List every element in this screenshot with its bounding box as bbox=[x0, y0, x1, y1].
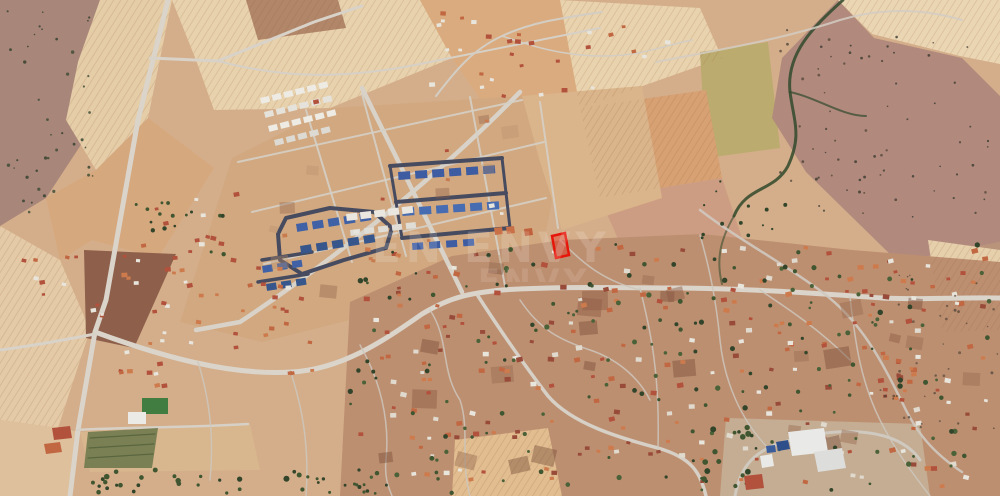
house bbox=[689, 404, 695, 409]
house bbox=[612, 288, 618, 293]
tree-marker bbox=[429, 456, 434, 461]
tree-marker bbox=[465, 285, 468, 288]
house bbox=[456, 421, 462, 426]
house bbox=[196, 320, 202, 325]
tree-marker bbox=[372, 328, 376, 332]
tree-marker bbox=[744, 425, 749, 430]
tree-marker bbox=[435, 471, 439, 475]
house bbox=[792, 258, 798, 263]
tree-marker bbox=[374, 377, 377, 380]
house bbox=[188, 250, 192, 253]
tree-marker bbox=[221, 252, 225, 256]
house bbox=[285, 285, 291, 289]
house bbox=[411, 472, 416, 476]
tree-marker bbox=[833, 411, 836, 414]
tree-marker bbox=[702, 459, 708, 465]
tree-marker bbox=[810, 301, 813, 304]
house bbox=[778, 331, 782, 334]
house bbox=[911, 427, 915, 430]
tree-marker bbox=[136, 483, 140, 487]
shrub-marker bbox=[87, 75, 89, 77]
tree-marker bbox=[783, 265, 788, 270]
tree-marker bbox=[712, 449, 717, 454]
shrub-marker bbox=[898, 370, 901, 373]
scene-root: ENENVYENVY bbox=[0, 0, 1000, 496]
tree-marker bbox=[544, 324, 549, 329]
tree-marker bbox=[104, 474, 110, 480]
tree-marker bbox=[740, 434, 746, 440]
shrub-marker bbox=[946, 305, 948, 307]
house bbox=[767, 407, 772, 411]
patch bbox=[306, 165, 319, 175]
house bbox=[234, 345, 239, 349]
house bbox=[915, 328, 921, 332]
patch bbox=[319, 284, 337, 298]
house bbox=[373, 318, 379, 322]
shrub-marker bbox=[886, 149, 888, 151]
house bbox=[480, 330, 485, 334]
tree-marker bbox=[845, 330, 850, 335]
tree-marker bbox=[765, 208, 769, 212]
tree-marker bbox=[838, 275, 842, 279]
tree-marker bbox=[700, 489, 703, 492]
house bbox=[562, 88, 568, 92]
tree-marker bbox=[375, 471, 379, 475]
tree-marker bbox=[856, 292, 860, 296]
tree-marker bbox=[105, 486, 109, 490]
shrub-marker bbox=[46, 118, 49, 121]
tree-marker bbox=[344, 484, 347, 487]
tree-marker bbox=[694, 322, 697, 325]
tree-marker bbox=[616, 300, 621, 305]
white-roof-block bbox=[360, 211, 372, 219]
house bbox=[548, 357, 555, 362]
house bbox=[530, 382, 536, 387]
campus-building bbox=[814, 448, 846, 472]
house bbox=[471, 20, 476, 24]
tree-marker bbox=[411, 411, 415, 415]
tree-marker bbox=[911, 278, 914, 281]
house bbox=[165, 267, 171, 272]
shrub-marker bbox=[933, 392, 935, 394]
house bbox=[826, 251, 832, 256]
white-roof-block bbox=[388, 208, 400, 216]
tree-marker bbox=[678, 299, 683, 304]
tree-marker bbox=[808, 307, 811, 310]
house bbox=[883, 388, 888, 392]
house bbox=[648, 452, 653, 456]
tree-marker bbox=[854, 437, 857, 440]
tree-marker bbox=[500, 411, 505, 416]
tree-marker bbox=[523, 432, 527, 436]
house bbox=[452, 266, 457, 270]
tree-marker bbox=[701, 233, 704, 236]
shrub-marker bbox=[884, 395, 887, 398]
shrub-marker bbox=[862, 212, 864, 214]
shrub-marker bbox=[9, 48, 12, 51]
house bbox=[774, 324, 779, 328]
house bbox=[724, 417, 730, 422]
map-viewport[interactable]: ENENVYENVY bbox=[0, 0, 1000, 496]
house bbox=[481, 470, 485, 474]
house bbox=[870, 392, 874, 395]
tree-marker bbox=[428, 363, 431, 366]
shrub-marker bbox=[35, 170, 38, 173]
tree-marker bbox=[225, 491, 228, 494]
tree-marker bbox=[614, 243, 617, 246]
tree-marker bbox=[605, 383, 609, 387]
shrub-marker bbox=[817, 74, 820, 77]
house bbox=[444, 471, 450, 475]
shrub-marker bbox=[16, 159, 18, 161]
house bbox=[860, 475, 864, 478]
house bbox=[529, 41, 535, 46]
shrub-marker bbox=[830, 56, 832, 58]
house bbox=[550, 477, 555, 481]
house bbox=[665, 40, 671, 44]
tree-marker bbox=[530, 323, 534, 327]
tree-marker bbox=[366, 489, 370, 493]
house bbox=[549, 320, 555, 324]
tree-marker bbox=[444, 450, 448, 454]
shrub-marker bbox=[825, 152, 827, 154]
shrub-marker bbox=[990, 371, 993, 374]
blue-roof-block bbox=[449, 168, 462, 177]
tree-marker bbox=[658, 318, 662, 322]
tree-marker bbox=[745, 469, 751, 475]
tree-marker bbox=[878, 310, 883, 315]
house bbox=[539, 93, 544, 97]
house bbox=[889, 320, 893, 323]
shrub-marker bbox=[969, 126, 971, 128]
house bbox=[494, 290, 501, 295]
tree-marker bbox=[627, 273, 632, 278]
shrub-marker bbox=[786, 43, 789, 46]
house bbox=[512, 435, 517, 439]
house bbox=[868, 314, 872, 317]
tree-marker bbox=[935, 379, 938, 382]
house bbox=[883, 355, 889, 360]
tree-marker bbox=[733, 431, 737, 435]
tree-marker bbox=[135, 203, 138, 206]
satellite-map[interactable]: ENENVYENVY bbox=[0, 0, 1000, 496]
house bbox=[552, 352, 559, 357]
house bbox=[899, 398, 904, 402]
shrub-marker bbox=[934, 102, 936, 104]
house bbox=[195, 238, 200, 242]
tree-marker bbox=[363, 483, 366, 486]
house bbox=[793, 368, 797, 371]
house bbox=[420, 371, 424, 374]
shrub-marker bbox=[27, 46, 29, 48]
shrub-marker bbox=[52, 190, 55, 193]
house bbox=[729, 321, 735, 326]
tree-marker bbox=[750, 434, 754, 438]
tree-marker bbox=[887, 276, 892, 281]
shrub-marker bbox=[55, 149, 58, 152]
house bbox=[740, 246, 746, 251]
house bbox=[448, 266, 452, 269]
shrub-marker bbox=[957, 310, 960, 313]
house bbox=[441, 19, 445, 22]
house bbox=[749, 317, 753, 320]
tree-marker bbox=[678, 327, 682, 331]
shrub-marker bbox=[846, 189, 848, 191]
tree-marker bbox=[101, 477, 105, 481]
tree-marker bbox=[172, 474, 176, 478]
tree-marker bbox=[810, 284, 814, 288]
shrub-marker bbox=[38, 99, 40, 101]
shrub-marker bbox=[868, 55, 871, 58]
shrub-marker bbox=[863, 192, 865, 194]
shrub-marker bbox=[907, 276, 909, 278]
house bbox=[473, 432, 479, 437]
tree-marker bbox=[97, 484, 100, 487]
house bbox=[862, 289, 868, 294]
tree-marker bbox=[909, 347, 912, 350]
tree-marker bbox=[848, 393, 852, 397]
tree-marker bbox=[476, 339, 480, 343]
tree-marker bbox=[923, 380, 928, 385]
patch bbox=[905, 335, 923, 350]
tree-marker bbox=[691, 429, 695, 433]
house bbox=[438, 348, 443, 352]
tree-marker bbox=[741, 390, 744, 393]
shrub-marker bbox=[958, 351, 961, 354]
house bbox=[310, 369, 314, 372]
house bbox=[624, 268, 631, 273]
shrub-marker bbox=[880, 154, 883, 157]
house bbox=[460, 16, 464, 19]
shrub-marker bbox=[31, 202, 33, 204]
house bbox=[515, 430, 520, 434]
watermark-text: EN bbox=[372, 223, 446, 272]
tree-marker bbox=[898, 377, 903, 382]
house bbox=[825, 277, 829, 280]
shrub-marker bbox=[47, 157, 50, 160]
shrub-marker bbox=[43, 194, 46, 197]
tree-marker bbox=[837, 333, 841, 337]
tree-marker bbox=[199, 475, 202, 478]
tree-marker bbox=[171, 214, 175, 218]
campus-building bbox=[760, 454, 774, 468]
house bbox=[256, 266, 261, 270]
house bbox=[460, 322, 464, 325]
tree-marker bbox=[747, 205, 750, 208]
tree-marker bbox=[162, 226, 166, 230]
shrub-marker bbox=[812, 148, 814, 150]
shrub-marker bbox=[88, 111, 91, 114]
house bbox=[95, 303, 99, 306]
shrub-marker bbox=[779, 171, 782, 174]
shrub-marker bbox=[898, 303, 900, 305]
house bbox=[390, 379, 396, 384]
tree-marker bbox=[980, 271, 984, 275]
house bbox=[446, 335, 450, 338]
house bbox=[381, 198, 385, 201]
tree-marker bbox=[650, 343, 653, 346]
shrub-marker bbox=[928, 54, 931, 57]
house bbox=[550, 420, 554, 423]
tree-marker bbox=[297, 473, 302, 478]
blue-roof-block bbox=[300, 244, 312, 254]
tree-marker bbox=[190, 211, 193, 214]
tree-marker bbox=[435, 458, 438, 461]
house bbox=[732, 300, 737, 304]
tree-marker bbox=[363, 277, 368, 282]
house bbox=[152, 310, 157, 314]
house bbox=[551, 471, 557, 475]
tree-marker bbox=[804, 351, 807, 354]
tree-marker bbox=[463, 427, 467, 431]
tree-marker bbox=[788, 322, 792, 326]
tree-marker bbox=[496, 283, 499, 286]
house bbox=[428, 378, 432, 381]
house bbox=[284, 310, 288, 313]
house bbox=[127, 369, 133, 373]
shrub-marker bbox=[87, 174, 90, 177]
shrub-marker bbox=[38, 25, 40, 27]
house bbox=[878, 378, 885, 383]
tree-marker bbox=[699, 320, 704, 325]
house bbox=[845, 290, 849, 293]
house bbox=[757, 390, 761, 393]
house bbox=[775, 402, 780, 406]
house bbox=[663, 306, 668, 310]
tree-marker bbox=[951, 451, 956, 456]
house bbox=[281, 308, 285, 311]
tree-marker bbox=[317, 481, 320, 484]
house bbox=[743, 446, 748, 450]
house bbox=[74, 255, 78, 258]
shrub-marker bbox=[975, 282, 977, 284]
house bbox=[806, 422, 810, 425]
tree-marker bbox=[408, 298, 411, 301]
shrub-marker bbox=[73, 143, 76, 146]
shrub-marker bbox=[895, 36, 898, 39]
tree-marker bbox=[693, 350, 697, 354]
house bbox=[148, 342, 152, 345]
tree-marker bbox=[300, 487, 304, 491]
tree-marker bbox=[616, 475, 621, 480]
shrub-marker bbox=[883, 169, 885, 171]
tree-marker bbox=[921, 323, 925, 327]
house bbox=[161, 383, 167, 388]
house bbox=[147, 371, 153, 375]
tree-marker bbox=[962, 454, 967, 459]
house bbox=[179, 268, 184, 272]
patch bbox=[823, 346, 852, 369]
blue-roof-block bbox=[316, 242, 328, 252]
blue-roof-block bbox=[470, 202, 483, 211]
house bbox=[308, 340, 313, 344]
blue-roof-block bbox=[419, 206, 432, 215]
house bbox=[483, 352, 489, 356]
shrub-marker bbox=[987, 326, 989, 328]
tree-marker bbox=[869, 482, 872, 485]
patch bbox=[378, 452, 393, 464]
tree-marker bbox=[485, 361, 488, 364]
house bbox=[930, 285, 935, 289]
tree-marker bbox=[118, 483, 123, 488]
shrub-marker bbox=[954, 295, 956, 297]
house bbox=[457, 314, 463, 318]
shrub-marker bbox=[13, 167, 15, 169]
tree-marker bbox=[949, 429, 954, 434]
shrub-marker bbox=[42, 11, 44, 13]
tree-marker bbox=[161, 201, 164, 204]
shrub-marker bbox=[915, 362, 917, 364]
patch bbox=[435, 188, 449, 199]
house bbox=[575, 345, 582, 351]
tree-marker bbox=[713, 257, 717, 261]
tree-marker bbox=[912, 455, 915, 458]
house bbox=[123, 255, 127, 258]
tree-marker bbox=[817, 367, 821, 371]
tree-marker bbox=[783, 203, 787, 207]
shrub-marker bbox=[880, 389, 882, 391]
house bbox=[172, 256, 177, 260]
house bbox=[385, 330, 390, 334]
house bbox=[901, 279, 907, 283]
shrub-marker bbox=[954, 309, 957, 312]
tree-marker bbox=[328, 491, 331, 494]
tree-marker bbox=[173, 225, 176, 228]
shrub-marker bbox=[945, 318, 948, 321]
tree-marker bbox=[114, 469, 119, 474]
tree-marker bbox=[551, 302, 555, 306]
house bbox=[931, 466, 937, 471]
house bbox=[640, 292, 646, 297]
tree-marker bbox=[686, 292, 689, 295]
tree-marker bbox=[939, 395, 943, 399]
house bbox=[215, 293, 219, 296]
house bbox=[261, 282, 266, 286]
house bbox=[157, 361, 163, 366]
tree-marker bbox=[146, 207, 150, 211]
shrub-marker bbox=[933, 190, 935, 192]
house bbox=[492, 341, 497, 345]
house bbox=[971, 280, 976, 284]
house bbox=[679, 453, 685, 458]
shrub-marker bbox=[909, 275, 911, 277]
house bbox=[571, 330, 576, 333]
house bbox=[746, 328, 752, 333]
blue-roof-block bbox=[398, 171, 411, 180]
house bbox=[883, 294, 890, 300]
shrub-marker bbox=[992, 308, 995, 311]
shrub-marker bbox=[61, 132, 63, 134]
tree-marker bbox=[139, 475, 144, 480]
tree-marker bbox=[158, 212, 162, 216]
house bbox=[535, 386, 540, 390]
tree-marker bbox=[801, 337, 804, 340]
shrub-marker bbox=[818, 205, 820, 207]
tree-marker bbox=[771, 228, 773, 230]
house bbox=[136, 259, 140, 262]
tree-marker bbox=[975, 242, 980, 247]
tree-marker bbox=[742, 405, 747, 410]
house bbox=[614, 409, 620, 414]
house bbox=[740, 370, 744, 373]
tree-marker bbox=[502, 479, 505, 482]
shrub-marker bbox=[932, 42, 934, 44]
tree-marker bbox=[443, 434, 448, 439]
tree-marker bbox=[487, 335, 490, 338]
tree-marker bbox=[362, 381, 366, 385]
shrub-marker bbox=[55, 38, 58, 41]
house bbox=[710, 371, 714, 374]
